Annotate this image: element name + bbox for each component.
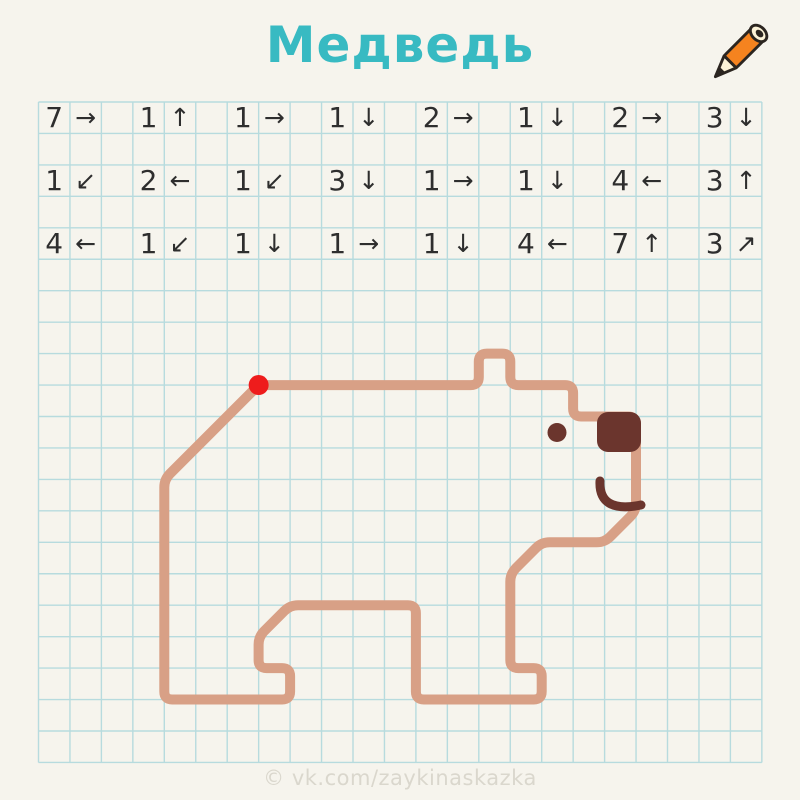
step-arrow-right: → (353, 228, 384, 259)
instruction-step: 7↑ (605, 228, 668, 259)
step-arrow-down-left: ↙ (70, 165, 101, 196)
step-arrow-right: → (70, 102, 101, 133)
instruction-step: 4← (39, 228, 102, 259)
grid-scene (0, 0, 800, 800)
step-count: 1 (39, 165, 70, 196)
bear-eye (548, 423, 567, 442)
step-count: 1 (227, 165, 258, 196)
instruction-step: 1↓ (416, 228, 479, 259)
step-count: 7 (605, 228, 636, 259)
step-arrow-left: ← (164, 165, 195, 196)
step-count: 1 (133, 102, 164, 133)
instruction-step: 3↑ (699, 165, 762, 196)
step-count: 1 (510, 102, 541, 133)
step-arrow-left: ← (636, 165, 667, 196)
step-count: 3 (322, 165, 353, 196)
instruction-step: 1→ (227, 102, 290, 133)
instruction-step: 2→ (416, 102, 479, 133)
step-count: 1 (227, 228, 258, 259)
instruction-step: 2→ (605, 102, 668, 133)
instruction-step: 1→ (416, 165, 479, 196)
instruction-step: 2← (133, 165, 196, 196)
step-count: 4 (605, 165, 636, 196)
step-arrow-down: ↓ (353, 165, 384, 196)
step-count: 1 (322, 102, 353, 133)
instruction-step: 1→ (322, 228, 385, 259)
instruction-step: 4← (605, 165, 668, 196)
worksheet-page: Медведь 7→1↑1→1↓2→1↓2→3↓1↙2←1↙3↓1→1↓4←3↑… (0, 0, 800, 800)
bear-outline-path (164, 354, 636, 700)
step-count: 1 (510, 165, 541, 196)
instruction-step: 3↗ (699, 228, 762, 259)
instruction-step: 3↓ (699, 102, 762, 133)
watermark: © vk.com/zaykinaskazka (0, 766, 800, 790)
instruction-step: 1↙ (39, 165, 102, 196)
instruction-step: 7→ (39, 102, 102, 133)
step-count: 2 (416, 102, 447, 133)
step-arrow-down-left: ↙ (259, 165, 290, 196)
step-arrow-right: → (259, 102, 290, 133)
instruction-step: 1↓ (322, 102, 385, 133)
step-arrow-down: ↓ (542, 165, 573, 196)
step-arrow-up: ↑ (730, 165, 761, 196)
instruction-step: 1↙ (133, 228, 196, 259)
step-arrow-up-right: ↗ (730, 228, 761, 259)
step-arrow-down: ↓ (730, 102, 761, 133)
instruction-step: 1↓ (510, 165, 573, 196)
step-arrow-left: ← (542, 228, 573, 259)
step-arrow-right: → (447, 165, 478, 196)
step-count: 4 (510, 228, 541, 259)
step-count: 2 (133, 165, 164, 196)
step-count: 1 (416, 165, 447, 196)
step-count: 1 (133, 228, 164, 259)
step-arrow-down: ↓ (353, 102, 384, 133)
instruction-step: 1↓ (510, 102, 573, 133)
step-count: 4 (39, 228, 70, 259)
instruction-step: 1↓ (227, 228, 290, 259)
step-arrow-down: ↓ (447, 228, 478, 259)
step-arrow-right: → (636, 102, 667, 133)
instruction-step: 1↙ (227, 165, 290, 196)
step-count: 7 (39, 102, 70, 133)
instruction-step: 1↑ (133, 102, 196, 133)
step-arrow-down-left: ↙ (164, 228, 195, 259)
step-count: 1 (416, 228, 447, 259)
step-count: 2 (605, 102, 636, 133)
instruction-step: 4← (510, 228, 573, 259)
step-arrow-down: ↓ (259, 228, 290, 259)
step-arrow-up: ↑ (636, 228, 667, 259)
step-count: 3 (699, 165, 730, 196)
step-count: 1 (322, 228, 353, 259)
instruction-step: 3↓ (322, 165, 385, 196)
step-arrow-up: ↑ (164, 102, 195, 133)
grid-paper (39, 102, 762, 762)
step-arrow-right: → (447, 102, 478, 133)
step-count: 3 (699, 102, 730, 133)
step-count: 3 (699, 228, 730, 259)
bear-nose (597, 412, 641, 452)
step-arrow-down: ↓ (542, 102, 573, 133)
step-count: 1 (227, 102, 258, 133)
start-dot (249, 375, 269, 395)
step-arrow-left: ← (70, 228, 101, 259)
